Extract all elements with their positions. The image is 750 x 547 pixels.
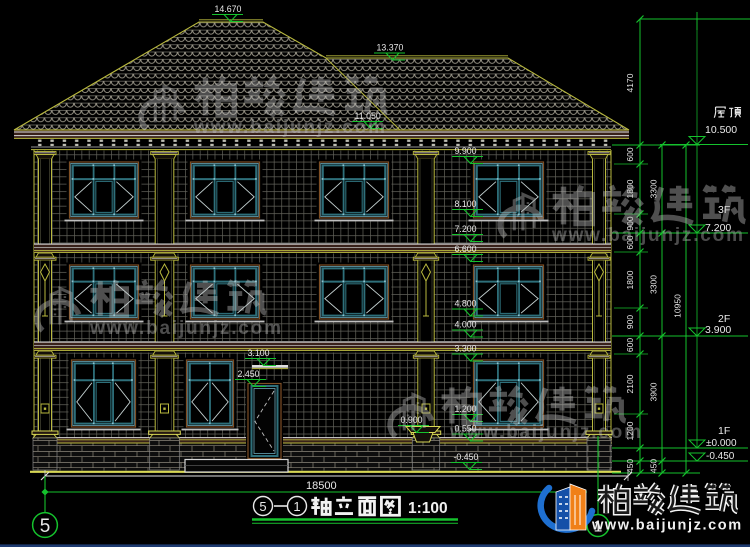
svg-text:7.200: 7.200 (455, 224, 477, 234)
svg-text:5: 5 (40, 516, 51, 537)
svg-text:3900: 3900 (649, 382, 659, 401)
svg-text:3300: 3300 (649, 275, 659, 294)
svg-text:900: 900 (625, 315, 635, 329)
svg-text:450: 450 (649, 459, 659, 473)
svg-text:-0.450: -0.450 (454, 452, 479, 462)
svg-text:6.600: 6.600 (455, 244, 477, 254)
svg-text:10950: 10950 (673, 294, 683, 318)
svg-text:3.300: 3.300 (455, 344, 477, 354)
svg-text:600: 600 (625, 147, 635, 161)
svg-text:3.100: 3.100 (248, 348, 270, 358)
svg-text:2100: 2100 (625, 374, 635, 393)
svg-text:4.000: 4.000 (455, 320, 477, 330)
svg-text:5: 5 (259, 499, 266, 514)
svg-text:www.baijunjz.com: www.baijunjz.com (193, 117, 387, 138)
svg-text:4170: 4170 (625, 73, 635, 92)
svg-text:18500: 18500 (306, 480, 337, 492)
svg-text:±0.000: ±0.000 (706, 438, 737, 449)
svg-text:www.baijunjz.com: www.baijunjz.com (449, 422, 643, 443)
svg-text:1800: 1800 (625, 270, 635, 289)
svg-text:www.baijunjz.com: www.baijunjz.com (591, 518, 743, 534)
svg-text:-0.450: -0.450 (706, 451, 735, 462)
svg-text:2.450: 2.450 (238, 369, 260, 379)
svg-text:1:100: 1:100 (408, 500, 448, 517)
svg-text:www.baijunjz.com: www.baijunjz.com (89, 318, 283, 339)
svg-text:13.370: 13.370 (377, 43, 404, 53)
svg-text:10.500: 10.500 (705, 124, 737, 136)
svg-text:1: 1 (293, 499, 300, 514)
svg-text:450: 450 (625, 459, 635, 473)
svg-text:14.670: 14.670 (215, 4, 242, 14)
svg-text:9.900: 9.900 (455, 146, 477, 156)
svg-text:600: 600 (625, 338, 635, 352)
svg-text:1F: 1F (718, 425, 730, 437)
svg-text:4.800: 4.800 (455, 299, 477, 309)
svg-text:www.baijunjz.com: www.baijunjz.com (551, 225, 745, 246)
svg-text:3.900: 3.900 (705, 324, 731, 336)
svg-text:8.100: 8.100 (455, 199, 477, 209)
